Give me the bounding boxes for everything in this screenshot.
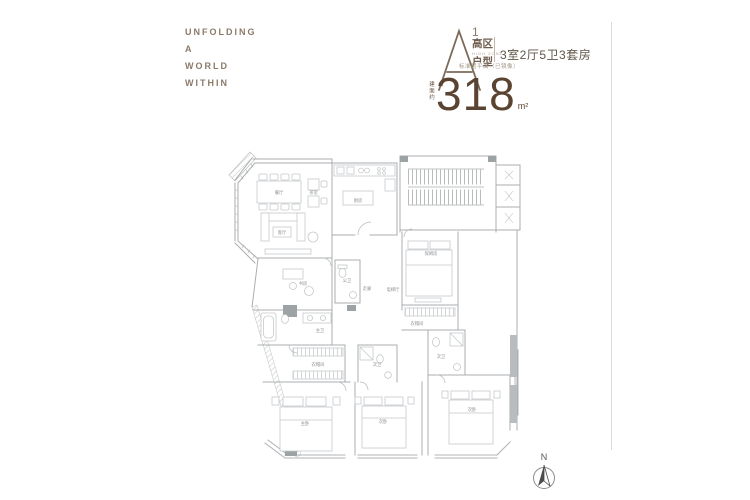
area-prefix: 建面约 <box>427 81 435 101</box>
unit-superscript: 1 <box>472 26 532 38</box>
unit-layout-desc: 3室2厅5卫3套房 <box>500 46 591 63</box>
room-label: 主卧 <box>301 420 310 427</box>
room-label: 茶室 <box>309 189 318 195</box>
room-label: 保姆房 <box>425 250 438 257</box>
brand-tagline: UNFOLDING A WORLD WITHIN <box>185 24 257 92</box>
room-label: 衣帽间 <box>312 361 325 368</box>
area-unit: m² <box>518 101 529 111</box>
right-divider-line <box>611 22 612 450</box>
brand-line: WORLD <box>185 58 257 75</box>
compass-label: N <box>541 452 548 462</box>
room-label: 次卫 <box>437 353 446 360</box>
brand-line: UNFOLDING <box>185 24 257 41</box>
room-label: 走廊 <box>363 285 372 292</box>
unit-divider <box>494 37 495 62</box>
brand-line: A <box>185 41 257 58</box>
room-label: 次卫 <box>373 361 382 368</box>
room-label: 主卫 <box>316 327 325 333</box>
room-label: 餐厅 <box>275 189 284 196</box>
stair-treads <box>408 169 513 223</box>
room-label: 次卧 <box>379 418 388 425</box>
room-label: 书房 <box>299 280 308 287</box>
brand-line: WITHIN <box>185 75 257 92</box>
room-label: 客厅 <box>278 229 287 236</box>
compass-icon <box>534 465 555 489</box>
room-label: 公卫 <box>343 278 352 283</box>
floorplan-drawing: 餐厅 茶室 客厅 厨房 书房 公卫 走廊 电梯厅 保姆房 衣帽间 次卫 次卧 主… <box>225 145 525 465</box>
room-label: 衣帽间 <box>411 320 424 327</box>
room-label: 电梯厅 <box>387 286 401 293</box>
area-value: 318 <box>436 74 516 114</box>
room-label: 次卧 <box>468 406 477 413</box>
compass: N <box>527 448 561 496</box>
room-label: 厨房 <box>354 197 363 204</box>
area-block: 建面约 318 m² <box>427 74 528 114</box>
page-root: UNFOLDING A WORLD WITHIN 1 高区 HIGH ZONE … <box>0 0 750 500</box>
